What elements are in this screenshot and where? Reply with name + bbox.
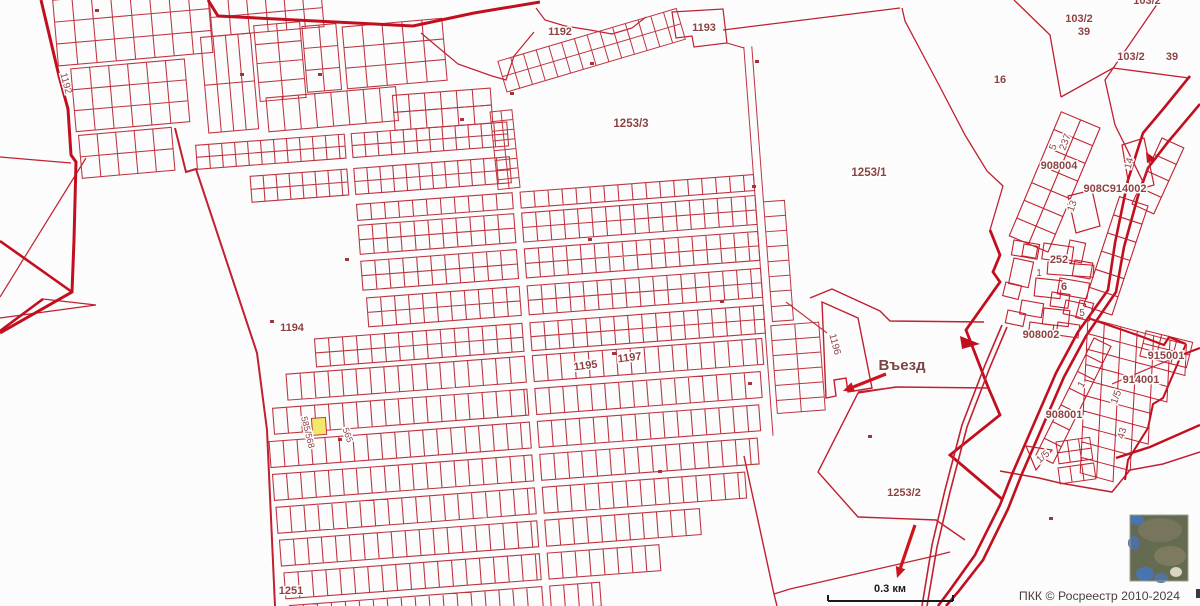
svg-text:908С914002: 908С914002	[1083, 183, 1146, 195]
svg-text:1253/1: 1253/1	[851, 167, 887, 179]
svg-text:252: 252	[1050, 254, 1068, 266]
svg-text:908002: 908002	[1023, 329, 1060, 341]
svg-text:103/2: 103/2	[1133, 0, 1161, 7]
svg-text:16: 16	[994, 74, 1006, 86]
svg-text:0.3 км: 0.3 км	[874, 583, 906, 595]
svg-text:915001: 915001	[1148, 350, 1185, 362]
svg-text:914001: 914001	[1123, 374, 1160, 386]
svg-text:39: 39	[1078, 26, 1090, 38]
svg-text:ПКК © Росреестр 2010-2024: ПКК © Росреестр 2010-2024	[1019, 589, 1180, 603]
svg-text:1193: 1193	[692, 22, 716, 34]
svg-text:39: 39	[1166, 51, 1178, 63]
svg-text:5: 5	[1079, 308, 1085, 319]
svg-text:1192: 1192	[548, 26, 572, 38]
svg-text:1251: 1251	[279, 585, 303, 597]
svg-text:1: 1	[1036, 268, 1042, 279]
svg-text:908004: 908004	[1041, 160, 1079, 172]
svg-text:1253/3: 1253/3	[613, 118, 648, 130]
svg-text:103/2: 103/2	[1117, 51, 1145, 63]
svg-text:6: 6	[1061, 281, 1067, 293]
svg-text:Въезд: Въезд	[878, 357, 926, 374]
svg-text:908001: 908001	[1046, 409, 1083, 421]
svg-text:1253/2: 1253/2	[887, 487, 921, 499]
svg-text:103/2: 103/2	[1065, 13, 1093, 25]
svg-text:1194: 1194	[280, 322, 305, 334]
